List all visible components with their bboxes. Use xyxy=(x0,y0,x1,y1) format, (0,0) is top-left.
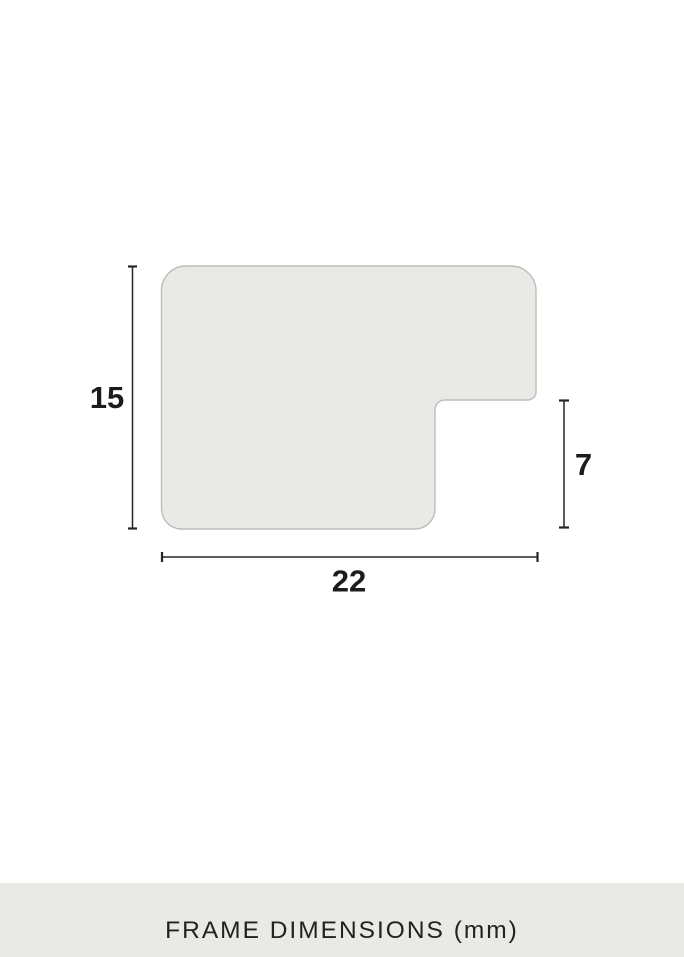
svg-text:15: 15 xyxy=(90,380,124,415)
svg-text:7: 7 xyxy=(575,447,592,482)
svg-text:22: 22 xyxy=(332,564,366,599)
